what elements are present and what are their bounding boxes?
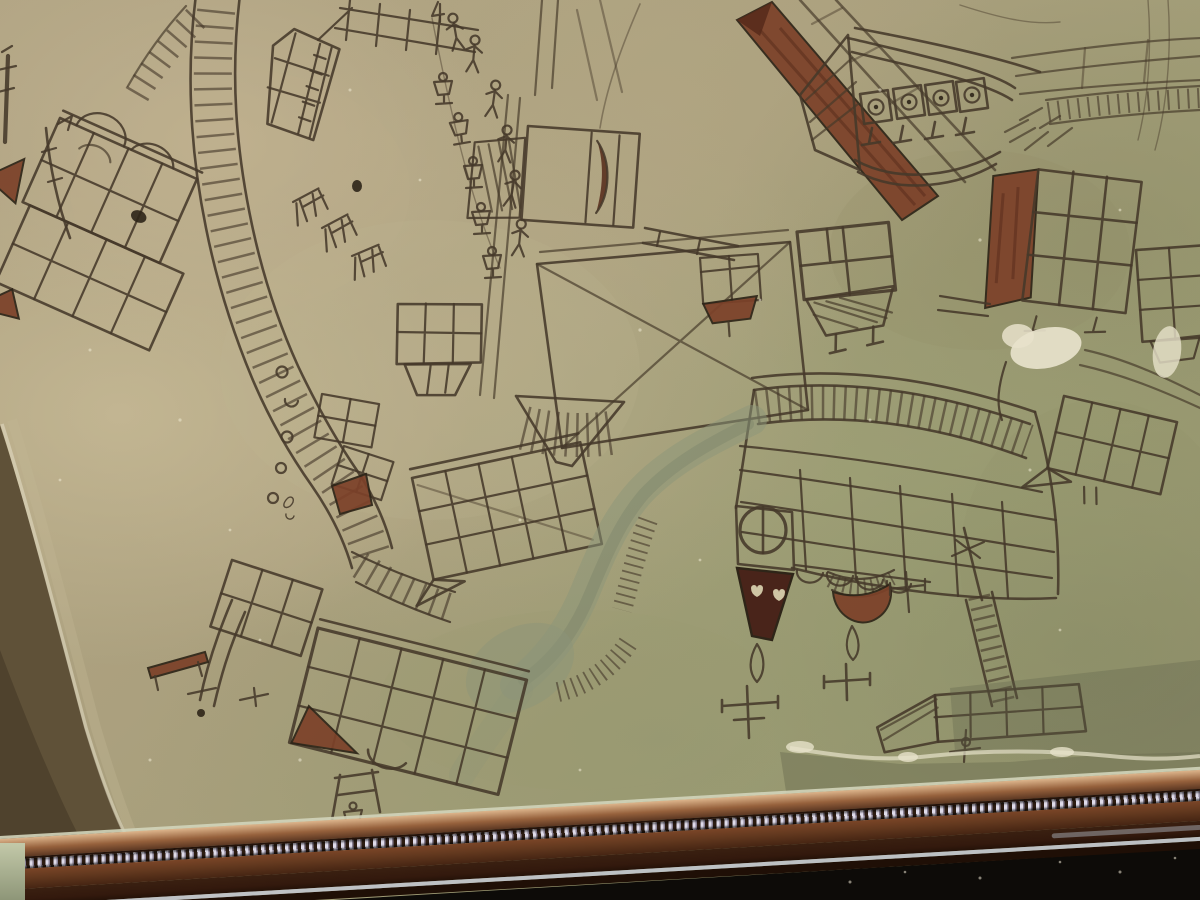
crescent-box	[467, 122, 639, 229]
drawing-layer	[0, 0, 1200, 900]
arcade-windows	[860, 78, 988, 124]
cross-middle	[824, 664, 870, 700]
red-bench	[148, 652, 208, 690]
photo-of-framed-drawing	[0, 0, 1200, 900]
frame-left-corner-sliver	[0, 843, 25, 900]
mat-wedge	[0, 420, 132, 842]
maroon-base-box	[700, 254, 763, 338]
